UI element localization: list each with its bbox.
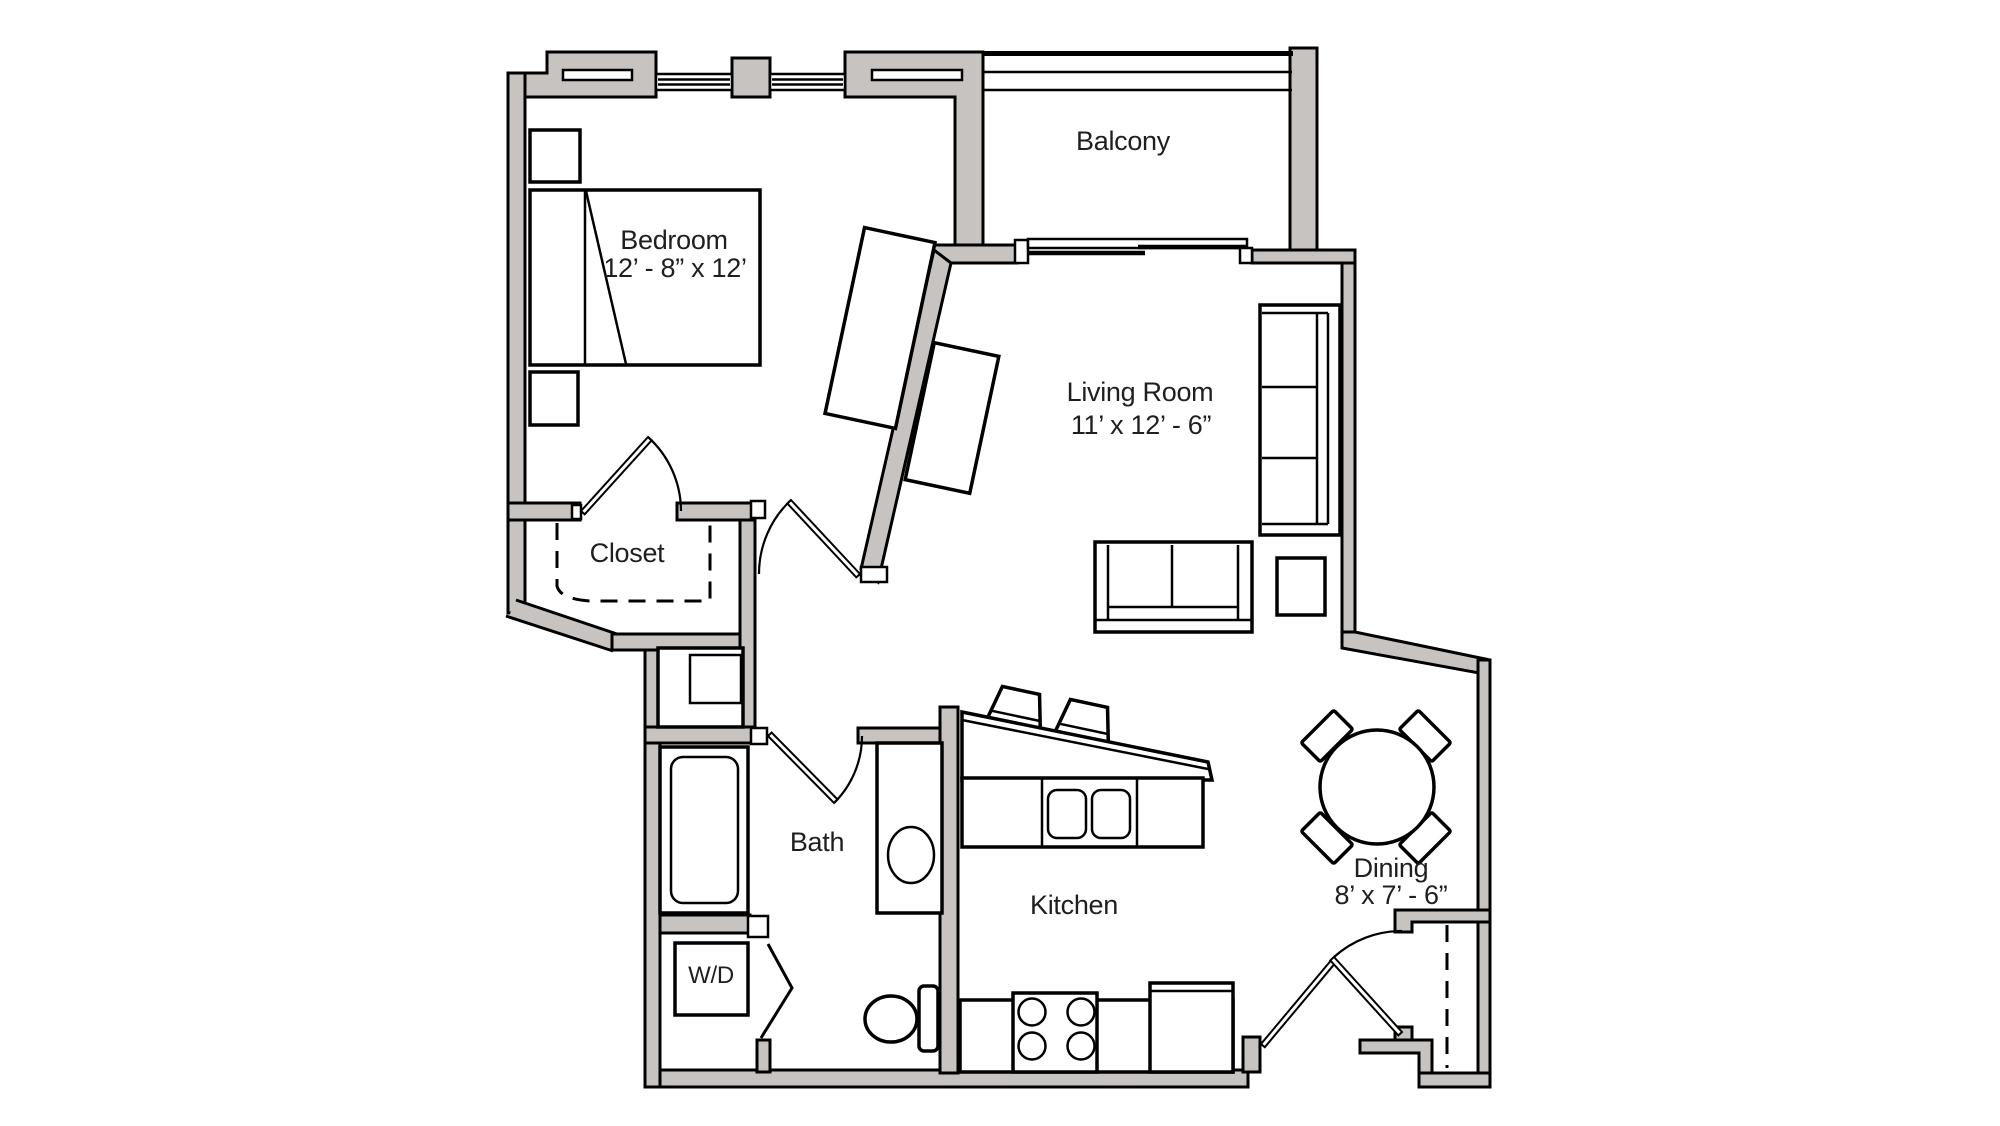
door-jamb-hall — [861, 567, 887, 582]
wall-closet-top-left — [508, 503, 580, 520]
wall-living-right — [1342, 263, 1355, 637]
refrigerator — [1150, 983, 1233, 1072]
toilet-tank — [919, 986, 938, 1051]
wd-bifold-door — [761, 944, 792, 1038]
wall-window-pillar — [732, 58, 770, 97]
balcony-rail-outer — [983, 51, 1293, 56]
wall-foyer-top — [1395, 910, 1490, 932]
living-room-label: Living Room — [1067, 377, 1214, 407]
hall-door-leaf — [787, 500, 860, 577]
bath-door-arc — [834, 736, 862, 803]
wall-bath-top — [645, 727, 753, 743]
bath-door-leaf — [768, 733, 838, 804]
wall-bottom-right — [1419, 1073, 1490, 1087]
sliding-door-jamb-right — [1240, 248, 1252, 263]
wall-closet-top-right — [677, 503, 755, 520]
living-room-furniture — [905, 305, 1340, 632]
nightstand-top — [530, 130, 580, 182]
foyer-closet-door-leaf — [1330, 957, 1402, 1035]
hall-cabinet — [658, 648, 743, 727]
loveseat — [1095, 542, 1252, 632]
wall-left — [508, 73, 525, 613]
wall-right — [1478, 660, 1490, 1087]
dining-dimensions: 8’ x 7’ - 6” — [1335, 880, 1448, 910]
door-jamb-living-hall — [751, 501, 765, 518]
dining-table — [1320, 730, 1434, 844]
entry-door-leaf — [1261, 958, 1337, 1047]
bedroom-dimensions: 12’ - 8” x 12’ — [603, 253, 746, 283]
wall-closet-diagonal — [512, 608, 617, 643]
nightstand-bottom — [530, 372, 578, 425]
floor-plan: Bedroom 12’ - 8” x 12’ Balcony Living Ro… — [0, 0, 2000, 1126]
wall-foyer-step — [1360, 1040, 1432, 1077]
bedroom-door-leaf — [581, 437, 652, 514]
balcony-label: Balcony — [1076, 126, 1171, 156]
dining-label: Dining — [1354, 853, 1429, 883]
bedroom-window-1 — [656, 74, 732, 90]
living-room-dimensions: 11’ x 12’ - 6” — [1071, 410, 1211, 440]
door-jamb-bedroom — [572, 505, 581, 519]
wall-balcony-right — [1290, 48, 1317, 250]
floor-plan-page: Bedroom 12’ - 8” x 12’ Balcony Living Ro… — [0, 0, 2000, 1126]
door-jamb-bath — [751, 728, 767, 744]
wall-living-top-right — [1252, 250, 1355, 263]
toilet-bowl — [865, 996, 917, 1042]
wall-slot-right — [872, 70, 962, 80]
coffee-table — [1277, 558, 1325, 615]
laundry-label: W/D — [688, 962, 734, 989]
wall-wd-top — [660, 915, 750, 933]
bath-label: Bath — [790, 827, 844, 857]
door-jamb-wd — [748, 916, 768, 937]
bedroom-label: Bedroom — [620, 225, 727, 255]
bathtub — [660, 747, 748, 913]
bedroom-window-2 — [770, 74, 845, 90]
closet-label: Closet — [590, 538, 666, 568]
wall-wd-bottom-stub — [757, 1040, 770, 1072]
wall-diagonal-se — [1342, 632, 1490, 675]
sliding-door-jamb-left — [1015, 240, 1028, 263]
wall-slot-left — [563, 70, 632, 80]
foyer-closet-door-arc — [1334, 931, 1402, 957]
kitchen-fixtures — [960, 685, 1233, 1072]
wall-bottom-end-stub — [1243, 1037, 1260, 1072]
kitchen-label: Kitchen — [1030, 890, 1118, 920]
bedroom-door-arc — [648, 437, 681, 511]
dining-furniture — [1301, 710, 1451, 864]
